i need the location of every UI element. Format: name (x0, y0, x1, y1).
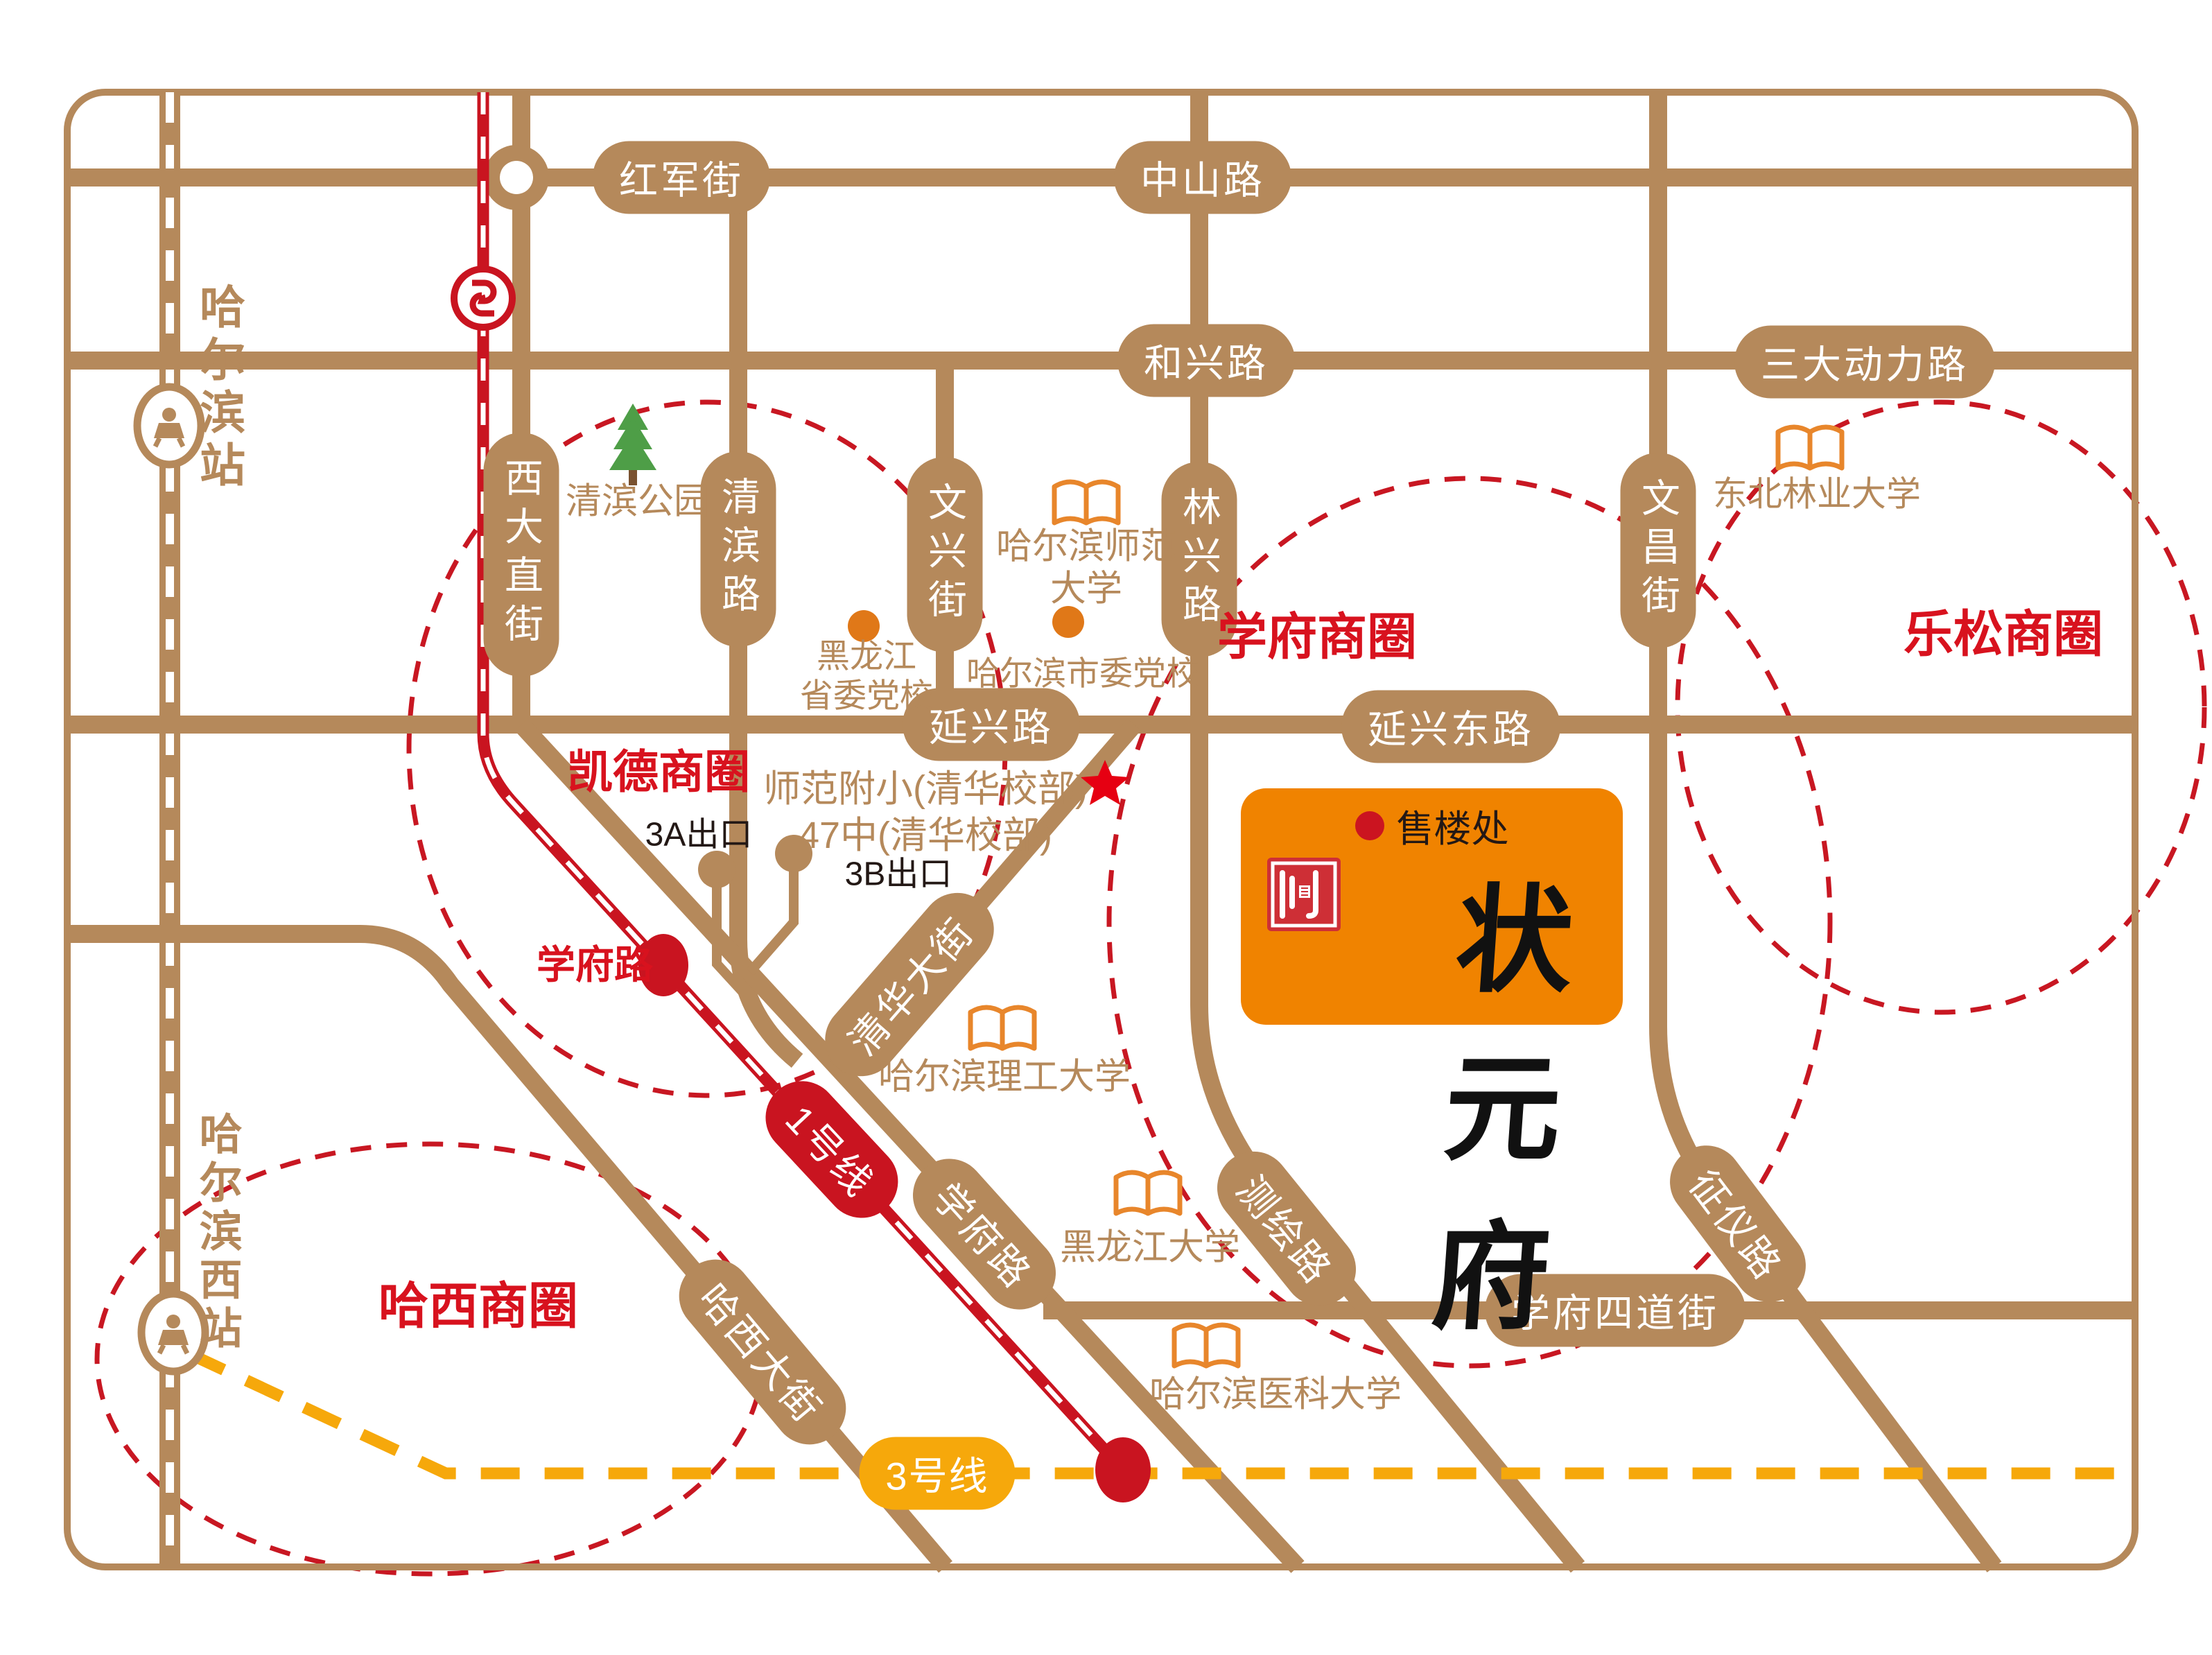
sales-office-label: 售楼处 (1397, 798, 1509, 853)
ligong-university-label: 哈尔滨理工大学 (878, 1056, 1131, 1098)
sales-office-row: 售楼处 (1241, 798, 1623, 853)
harbin-west-station-label: 哈尔滨西站 (191, 1111, 241, 1354)
district-xuefu: 学府商圈 (1217, 609, 1417, 668)
road-network (67, 92, 2135, 1567)
metro-line3-badge: 3号线 (859, 1437, 1015, 1510)
road-pill-hexing: 和兴路 (1117, 324, 1295, 397)
tree-icon (609, 404, 656, 485)
line1-terminus-dot (1095, 1437, 1151, 1502)
road-pill-wenxing: 文兴街 (907, 457, 983, 652)
project-block: 售楼处 状元府 (1241, 788, 1623, 1025)
book-icon (970, 1007, 1034, 1048)
exit-3a-ball (698, 851, 735, 888)
road-pill-wenchang: 文昌街 (1621, 453, 1696, 648)
project-logo-seal (1267, 858, 1341, 935)
district-kaide: 凯德商圈 (567, 745, 750, 799)
heilongjiang-university-label: 黑龙江大学 (1060, 1227, 1240, 1269)
provincial-party-school: 黑龙江 省委党校 (800, 637, 933, 716)
road-pill-sandadongli: 三大动力路 (1734, 326, 1995, 399)
location-map-canvas: 红军街 中山路 和兴路 三大动力路 延兴路 延兴东路 学府四道街 西大直街 清滨… (0, 0, 2212, 1655)
medical-university-label: 哈尔滨医科大学 (1149, 1374, 1402, 1416)
forestry-university-label: 东北林业大学 (1713, 474, 1921, 515)
road-pill-zhongshan: 中山路 (1114, 141, 1291, 214)
book-icon (1174, 1325, 1238, 1366)
xuefulu-station-label: 学府路 (537, 942, 653, 988)
fuxiao-school-label: 师范附小(清华校部) (763, 768, 1088, 812)
sales-office-dot (1355, 811, 1384, 840)
district-lesong: 乐松商圈 (1904, 606, 2103, 665)
book-icon (1054, 482, 1118, 523)
road-pill-hongjun: 红军街 (593, 141, 770, 214)
no47-school-label: 47中(清华校部) (799, 814, 1052, 858)
road-pill-qingbinlu: 清滨路 (701, 451, 776, 647)
map-shapes (0, 0, 2212, 1655)
exit-3b-label: 3B出口 (845, 856, 952, 895)
book-icon (1778, 427, 1842, 468)
exit-3a-label: 3A出口 (645, 816, 753, 856)
district-haxi: 哈西商圈 (378, 1278, 578, 1337)
normal-university-label: 哈尔滨师范 大学 (996, 526, 1176, 612)
book-icon (1116, 1172, 1180, 1213)
project-name: 状元府 (1373, 847, 1637, 1352)
qingbin-park-label: 清滨公园 (566, 480, 710, 523)
metro-exits (698, 835, 812, 997)
harbin-station-label: 哈尔滨站 (191, 283, 245, 494)
metro-logo-icon (454, 269, 512, 327)
roundabout (484, 145, 549, 210)
road-pill-yanxingdong: 延兴东路 (1341, 691, 1560, 763)
city-party-school-label: 哈尔滨市委党校 (966, 655, 1199, 695)
road-pill-xidazhi: 西大直街 (484, 433, 559, 677)
